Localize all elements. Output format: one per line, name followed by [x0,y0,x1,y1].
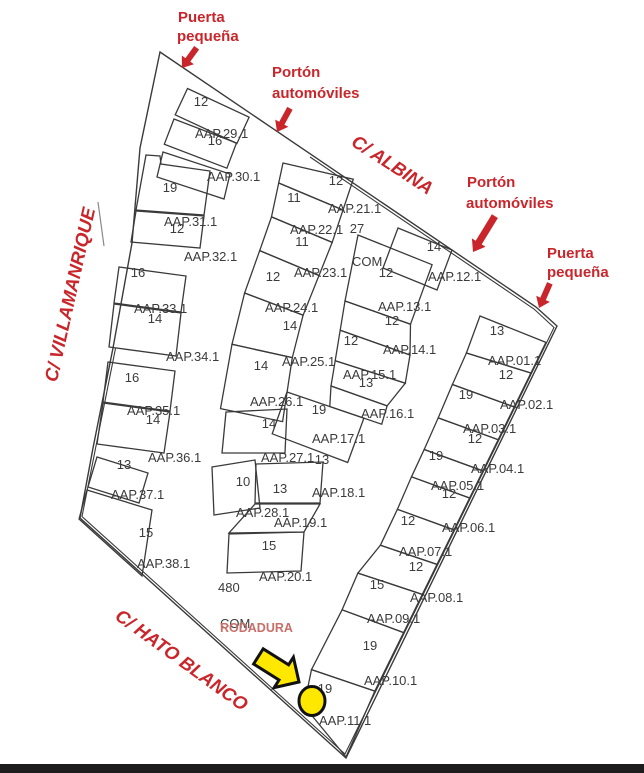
svg-text:14: 14 [283,318,297,333]
svg-text:19: 19 [363,638,377,653]
svg-text:Portón: Portón [467,174,515,191]
svg-text:15: 15 [370,577,384,592]
svg-text:11: 11 [287,190,301,205]
svg-text:AAP.15.1: AAP.15.1 [343,367,396,382]
svg-text:COM: COM [352,254,382,269]
svg-text:AAP.19.1: AAP.19.1 [274,515,327,530]
svg-text:Puerta: Puerta [178,9,225,26]
svg-text:14: 14 [427,239,441,254]
svg-text:AAP.05.1: AAP.05.1 [431,478,484,493]
svg-text:AAP.35.1: AAP.35.1 [127,403,180,418]
svg-text:AAP.12.1: AAP.12.1 [428,269,481,284]
svg-text:AAP.29.1: AAP.29.1 [195,126,248,141]
svg-text:15: 15 [262,538,276,553]
svg-text:13: 13 [117,457,131,472]
svg-text:AAP.25.1: AAP.25.1 [282,354,335,369]
svg-text:AAP.27.1: AAP.27.1 [261,450,314,465]
svg-text:AAP.14.1: AAP.14.1 [383,342,436,357]
svg-text:16: 16 [125,370,139,385]
svg-text:13: 13 [490,323,504,338]
svg-text:12: 12 [499,367,513,382]
svg-text:27: 27 [350,221,364,236]
svg-text:AAP.31.1: AAP.31.1 [164,214,217,229]
svg-text:AAP.10.1: AAP.10.1 [364,673,417,688]
svg-text:AAP.08.1: AAP.08.1 [410,590,463,605]
svg-text:AAP.30.1: AAP.30.1 [207,169,260,184]
svg-text:AAP.16.1: AAP.16.1 [361,406,414,421]
svg-text:AAP.20.1: AAP.20.1 [259,569,312,584]
svg-text:14: 14 [254,358,268,373]
svg-text:12: 12 [329,173,343,188]
svg-text:AAP.23.1: AAP.23.1 [294,265,347,280]
svg-text:15: 15 [139,525,153,540]
svg-text:480: 480 [218,580,240,595]
svg-text:19: 19 [459,387,473,402]
svg-text:12: 12 [401,513,415,528]
svg-text:AAP.01.1: AAP.01.1 [488,353,541,368]
svg-text:AAP.24.1: AAP.24.1 [265,300,318,315]
svg-text:automóviles: automóviles [466,195,554,212]
svg-text:12: 12 [194,94,208,109]
svg-text:10: 10 [236,474,250,489]
svg-text:AAP.11.1: AAP.11.1 [319,713,371,728]
svg-text:AAP.18.1: AAP.18.1 [312,485,365,500]
svg-text:19: 19 [163,180,177,195]
svg-text:AAP.09.1: AAP.09.1 [367,611,420,626]
svg-text:AAP.02.1: AAP.02.1 [500,397,553,412]
svg-text:AAP.32.1: AAP.32.1 [184,249,237,264]
svg-text:Portón: Portón [272,64,320,81]
svg-text:AAP.22.1: AAP.22.1 [290,222,343,237]
svg-text:AAP.06.1: AAP.06.1 [442,520,495,535]
svg-text:AAP.07.1: AAP.07.1 [399,544,452,559]
svg-text:AAP.37.1: AAP.37.1 [111,487,164,502]
svg-text:AAP.34.1: AAP.34.1 [166,349,219,364]
svg-text:AAP.03.1: AAP.03.1 [463,421,516,436]
svg-text:AAP.26.1: AAP.26.1 [250,394,303,409]
svg-text:AAP.04.1: AAP.04.1 [471,461,524,476]
svg-text:automóviles: automóviles [272,85,360,102]
svg-text:13: 13 [315,452,329,467]
svg-text:pequeña: pequeña [547,264,609,281]
svg-text:19: 19 [429,448,443,463]
svg-text:pequeña: pequeña [177,28,239,45]
svg-text:12: 12 [344,333,358,348]
svg-text:AAP.21.1: AAP.21.1 [328,201,381,216]
svg-text:14: 14 [262,416,276,431]
svg-text:AAP.33.1: AAP.33.1 [134,301,187,316]
svg-text:AAP.17.1: AAP.17.1 [312,431,365,446]
svg-text:16: 16 [131,265,145,280]
svg-text:AAP.36.1: AAP.36.1 [148,450,201,465]
svg-text:RODADURA: RODADURA [220,621,293,635]
svg-text:AAP.13.1: AAP.13.1 [378,299,431,314]
svg-text:19: 19 [312,402,326,417]
svg-text:12: 12 [266,269,280,284]
svg-text:AAP.38.1: AAP.38.1 [137,556,190,571]
svg-text:12: 12 [385,313,399,328]
svg-text:Puerta: Puerta [547,245,594,262]
svg-text:13: 13 [273,481,287,496]
svg-text:12: 12 [409,559,423,574]
